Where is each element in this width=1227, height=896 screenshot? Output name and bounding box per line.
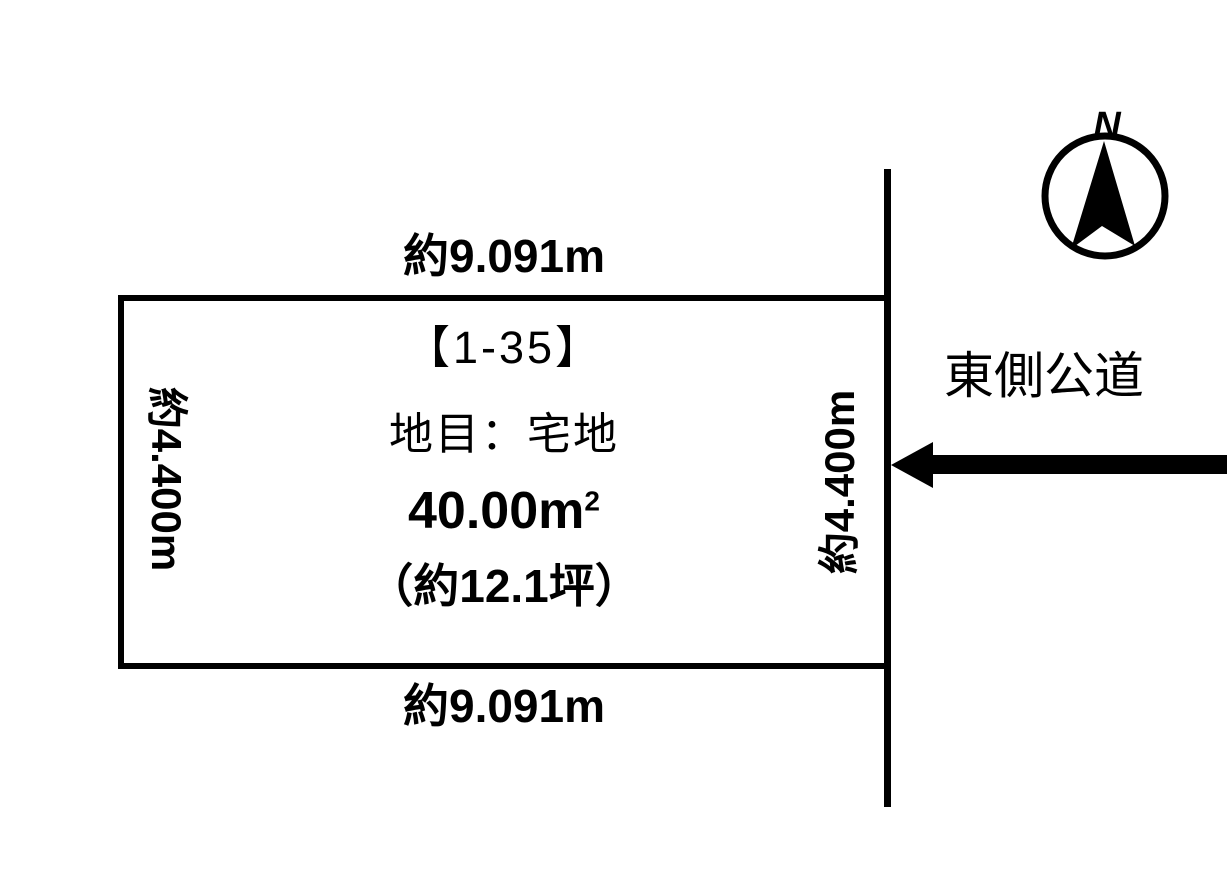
road-arrow-bar (930, 455, 1227, 474)
road-line (884, 169, 891, 807)
road-arrow-head-icon (891, 442, 933, 488)
land-plot-diagram: 約9.091m 【1-35】 地目：宅地 40.00m2 （約12.1坪） 約9… (0, 0, 1227, 896)
dimension-bottom-label: 約9.091m (118, 683, 890, 729)
area-value: 40.00 (408, 482, 538, 540)
road-label: 東側公道 (944, 350, 1144, 403)
land-category-label: 地目：宅地 (124, 413, 884, 457)
area-unit: m (538, 482, 584, 540)
parcel-outline: 【1-35】 地目：宅地 40.00m2 （約12.1坪） (118, 295, 890, 669)
north-needle-icon (1071, 141, 1135, 249)
area-label: 40.00m2 (124, 485, 884, 537)
dimension-left-label: 約4.400m (145, 387, 187, 571)
compass-icon: N (1035, 100, 1175, 270)
area-tsubo-label: （約12.1坪） (124, 563, 884, 609)
dimension-top-label: 約9.091m (118, 233, 890, 279)
dimension-right-label: 約4.400m (819, 390, 861, 574)
parcel-number-label: 【1-35】 (124, 325, 884, 370)
area-exponent: 2 (584, 486, 600, 517)
